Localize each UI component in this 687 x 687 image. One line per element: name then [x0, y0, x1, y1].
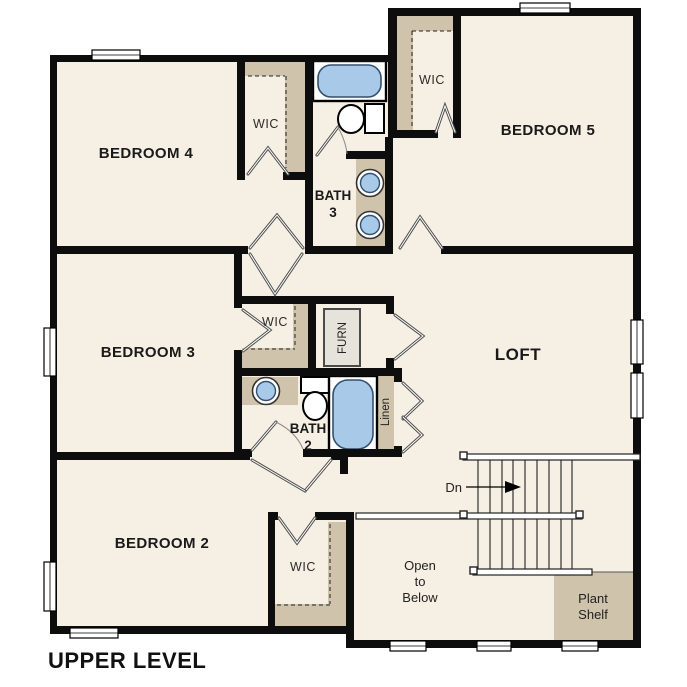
closet-label-wic-bedroom2: WIC — [290, 560, 316, 574]
stairs-down-label: Dn — [445, 480, 462, 495]
wall-ext-top-right — [388, 8, 640, 16]
wic3-shelf-band-bottom — [242, 348, 308, 368]
closet-label-linen: Linen — [380, 398, 392, 426]
plant-shelf-line1: Plant — [578, 591, 608, 606]
plant-shelf-label: PlantShelf — [578, 591, 608, 622]
bath2-toilet-bowl — [303, 392, 327, 420]
room-label-bedroom-3: BEDROOM 3 — [101, 344, 195, 361]
room-label-loft: LOFT — [495, 345, 541, 364]
bath3-sink-1-basin — [361, 174, 380, 193]
stair-rail-bottom — [473, 569, 592, 575]
stair-rail-middle — [356, 513, 582, 519]
bath2-line1: BATH — [290, 421, 327, 436]
plant-shelf-line2: Shelf — [578, 607, 608, 622]
plant-shelf-area — [554, 572, 633, 640]
bath3-toilet-tank — [365, 104, 384, 133]
open-to-below-line2: to — [415, 574, 426, 589]
wic2-shelf-band-bottom — [275, 604, 346, 628]
bath3-line1: BATH — [315, 188, 352, 203]
bath3-line2: 3 — [329, 205, 337, 220]
closet-label-wic-bedroom5: WIC — [419, 73, 445, 87]
bath3-sink-2-basin — [361, 216, 380, 235]
bath3-toilet-bowl — [338, 105, 364, 133]
bath2-line2: 2 — [304, 438, 312, 453]
wic4-shelf-band-right — [285, 58, 305, 174]
bath3-tub — [318, 65, 381, 97]
stair-rail-top — [463, 454, 640, 460]
room-label-bedroom-5: BEDROOM 5 — [501, 122, 595, 139]
closet-label-wic-bedroom3: WIC — [262, 315, 288, 329]
bath2-sink-basin — [257, 382, 276, 401]
closet-label-furnace: FURN — [337, 322, 349, 354]
closet-label-wic-bedroom4: WIC — [253, 117, 279, 131]
page-title: UPPER LEVEL — [48, 648, 206, 673]
open-to-below-line1: Open — [404, 558, 436, 573]
floor-plan-svg: BEDROOM 4 BEDROOM 5 BEDROOM 3 BEDROOM 2 … — [0, 0, 687, 687]
room-label-bedroom-4: BEDROOM 4 — [99, 145, 194, 162]
wic5-shelf-band-top — [397, 16, 454, 31]
floor-plan-page: BEDROOM 4 BEDROOM 5 BEDROOM 3 BEDROOM 2 … — [0, 0, 687, 687]
open-to-below-line3: Below — [402, 590, 438, 605]
room-label-bedroom-2: BEDROOM 2 — [115, 535, 209, 552]
wic5-shelf-band-left — [397, 16, 413, 131]
bath2-toilet-tank — [301, 377, 330, 393]
bath2-tub — [333, 380, 373, 449]
